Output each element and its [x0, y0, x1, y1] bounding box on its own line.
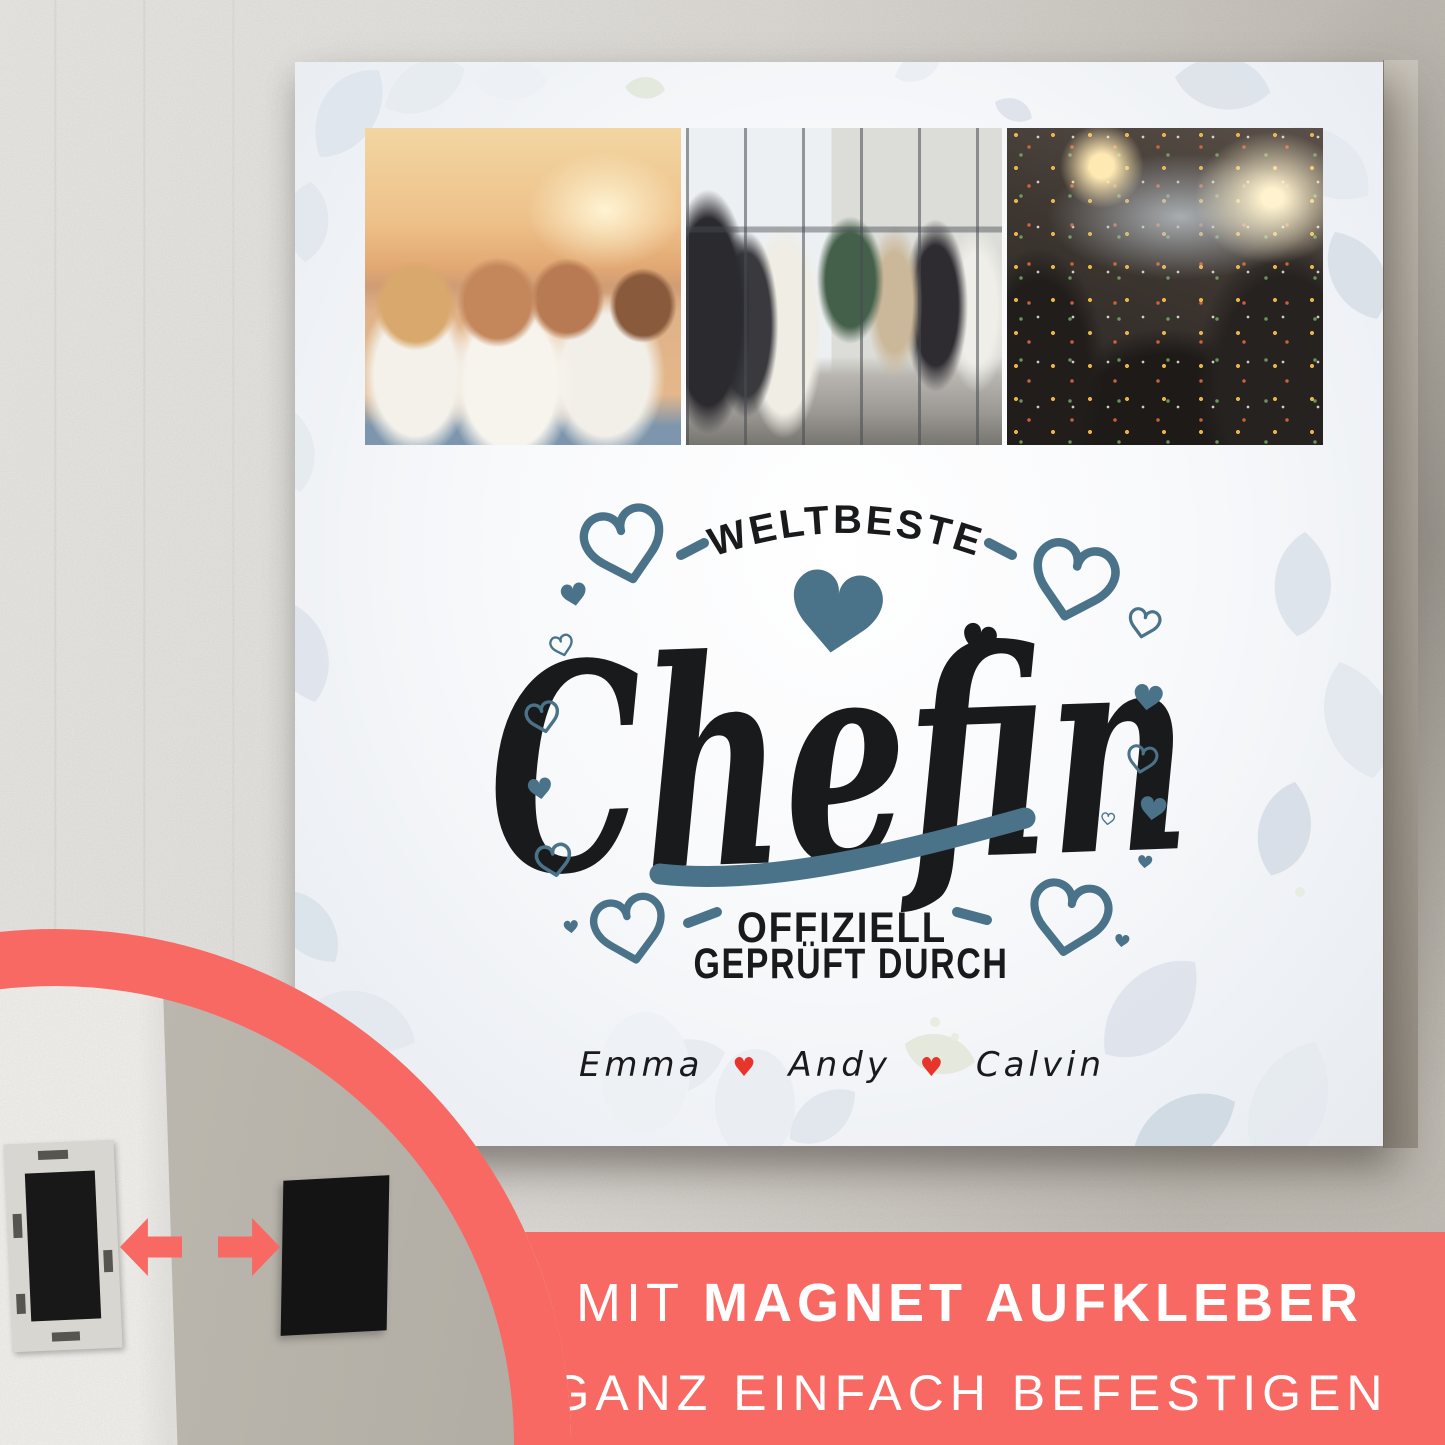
canvas-side-edge	[1383, 60, 1418, 1148]
magnet-demo-inset	[0, 929, 571, 1445]
name-3: Calvin	[976, 1045, 1105, 1085]
banner-line1-bold: MAGNET AUFKLEBER	[703, 1273, 1363, 1333]
name-heart-icon: ♥	[732, 1053, 759, 1083]
product-mockup: WELTBESTE Chefin OFFIZIELL GEPRÜFT DURCH…	[0, 0, 1445, 1445]
headline-weltbeste: WELTBESTE	[703, 498, 989, 565]
banner-line-1: MIT MAGNET AUFKLEBER	[500, 1272, 1439, 1334]
name-heart-icon: ♥	[920, 1053, 947, 1083]
banner-line-2: GANZ EINFACH BEFESTIGEN	[500, 1364, 1439, 1422]
name-1: Emma	[579, 1045, 704, 1085]
banner-line1-prefix: MIT	[576, 1273, 703, 1333]
name-2: Andy	[786, 1045, 891, 1085]
heart-outline-icon	[579, 503, 669, 588]
subline-geprueft-durch: GEPRÜFT DURCH	[694, 940, 1009, 988]
promo-banner-text: MIT MAGNET AUFKLEBER GANZ EINFACH BEFEST…	[500, 1232, 1439, 1445]
names-line: Emma ♥ Andy ♥ Calvin	[579, 1045, 1105, 1085]
heart-icon	[1114, 934, 1130, 949]
